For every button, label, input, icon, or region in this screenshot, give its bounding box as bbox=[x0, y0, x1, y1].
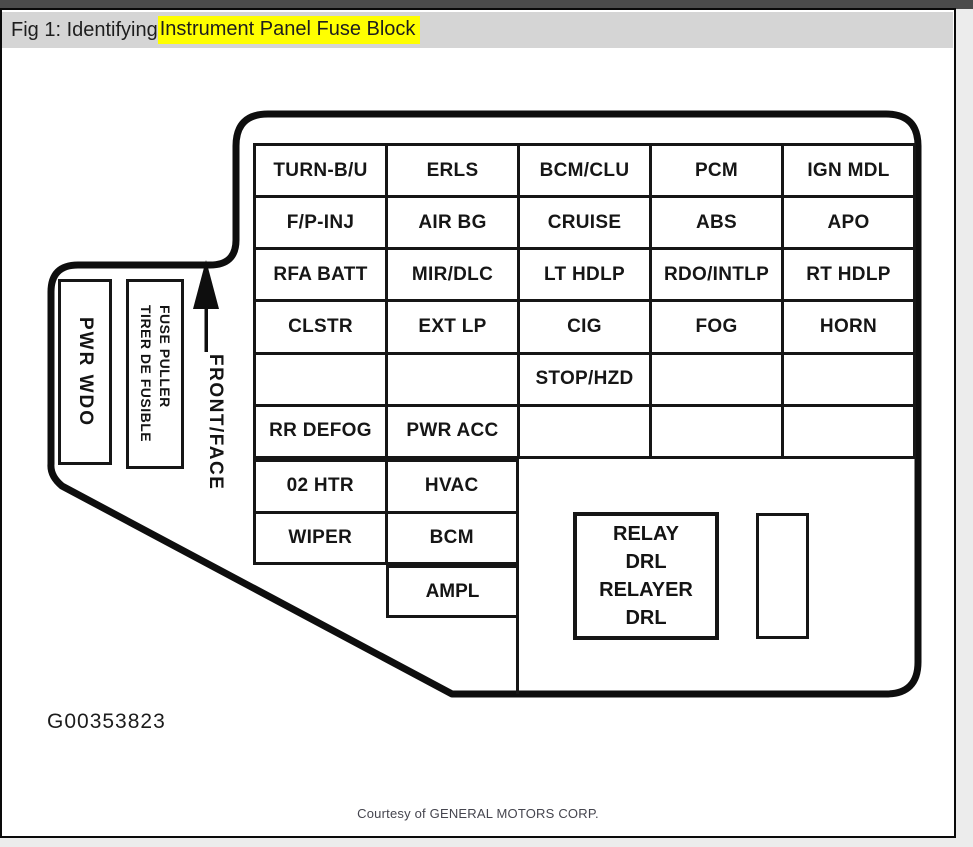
fuse-cell-empty bbox=[651, 353, 783, 405]
fuse-row: RR DEFOG PWR ACC bbox=[255, 405, 915, 457]
fuse-cell: ABS bbox=[651, 197, 783, 249]
fuse-cell: AMPL bbox=[386, 565, 519, 618]
figure-titlebar: Fig 1: Identifying Instrument Panel Fuse… bbox=[2, 12, 953, 48]
fuse-cell: WIPER bbox=[255, 512, 387, 564]
fuse-cell: RDO/INTLP bbox=[651, 249, 783, 301]
fuse-grid-lower: 02 HTR HVAC WIPER BCM bbox=[253, 459, 519, 565]
fuse-cell: IGN MDL bbox=[783, 145, 915, 197]
fuse-cell-empty bbox=[255, 353, 387, 405]
fuse-cell: RFA BATT bbox=[255, 249, 387, 301]
fuse-cell: CLSTR bbox=[255, 301, 387, 353]
fuse-cell: APO bbox=[783, 197, 915, 249]
relay-line: RELAYER bbox=[599, 576, 693, 604]
fuse-puller-box: FUSE PULLER TIRER DE FUSIBLE bbox=[126, 279, 184, 469]
fuse-cell: TURN-B/U bbox=[255, 145, 387, 197]
fuse-row: TURN-B/U ERLS BCM/CLU PCM IGN MDL bbox=[255, 145, 915, 197]
pwr-wdo-box: PWR WDO bbox=[58, 279, 112, 465]
fuse-puller-line-fr: TIRER DE FUSIBLE bbox=[136, 305, 155, 442]
relay-drl-box: RELAY DRL RELAYER DRL bbox=[573, 512, 719, 640]
figure-id: G00353823 bbox=[47, 710, 166, 734]
courtesy-credit: Courtesy of GENERAL MOTORS CORP. bbox=[2, 806, 954, 821]
fuse-cell: RR DEFOG bbox=[255, 405, 387, 457]
pwr-wdo-label: PWR WDO bbox=[74, 317, 96, 427]
fuse-cell-empty bbox=[651, 405, 783, 457]
fuse-cell: F/P-INJ bbox=[255, 197, 387, 249]
fuse-grid-main: TURN-B/U ERLS BCM/CLU PCM IGN MDL F/P-IN… bbox=[253, 143, 916, 459]
fuse-puller-label: FUSE PULLER TIRER DE FUSIBLE bbox=[136, 305, 174, 442]
fuse-block-diagram: TURN-B/U ERLS BCM/CLU PCM IGN MDL F/P-IN… bbox=[2, 48, 954, 836]
fuse-cell-empty bbox=[783, 353, 915, 405]
front-face-arrow-icon bbox=[193, 260, 219, 352]
fuse-cell-empty bbox=[783, 405, 915, 457]
fuse-cell: RT HDLP bbox=[783, 249, 915, 301]
fuse-puller-line-en: FUSE PULLER bbox=[155, 305, 174, 442]
fuse-row: STOP/HZD bbox=[255, 353, 915, 405]
empty-relay-slot-box bbox=[756, 513, 809, 639]
fuse-cell: ERLS bbox=[387, 145, 519, 197]
fuse-cell: CRUISE bbox=[519, 197, 651, 249]
fuse-cell: PCM bbox=[651, 145, 783, 197]
page: Fig 1: Identifying Instrument Panel Fuse… bbox=[0, 0, 973, 847]
fuse-cell: LT HDLP bbox=[519, 249, 651, 301]
fuse-cell-empty bbox=[519, 405, 651, 457]
fuse-cell-empty bbox=[387, 353, 519, 405]
fuse-row: WIPER BCM bbox=[255, 512, 518, 564]
fuse-cell: HORN bbox=[783, 301, 915, 353]
fuse-cell: FOG bbox=[651, 301, 783, 353]
fuse-cell: PWR ACC bbox=[387, 405, 519, 457]
figure-panel: Fig 1: Identifying Instrument Panel Fuse… bbox=[0, 8, 956, 838]
grid-divider-line bbox=[516, 616, 519, 694]
fuse-cell: BCM bbox=[386, 512, 518, 564]
figure-title-highlight: Instrument Panel Fuse Block bbox=[158, 16, 421, 44]
fuse-row: F/P-INJ AIR BG CRUISE ABS APO bbox=[255, 197, 915, 249]
fuse-cell: HVAC bbox=[386, 461, 518, 513]
fuse-row: CLSTR EXT LP CIG FOG HORN bbox=[255, 301, 915, 353]
fuse-cell: EXT LP bbox=[387, 301, 519, 353]
relay-line: DRL bbox=[625, 548, 666, 576]
fuse-cell: 02 HTR bbox=[255, 461, 387, 513]
fuse-cell: BCM/CLU bbox=[519, 145, 651, 197]
figure-title-prefix: Fig 1: Identifying bbox=[11, 19, 158, 42]
fuse-cell: AIR BG bbox=[387, 197, 519, 249]
fuse-row: 02 HTR HVAC bbox=[255, 461, 518, 513]
relay-line: DRL bbox=[625, 604, 666, 632]
relay-line: RELAY bbox=[613, 520, 679, 548]
fuse-cell: STOP/HZD bbox=[519, 353, 651, 405]
fuse-row: RFA BATT MIR/DLC LT HDLP RDO/INTLP RT HD… bbox=[255, 249, 915, 301]
fuse-cell: MIR/DLC bbox=[387, 249, 519, 301]
front-face-label: FRONT/FACE bbox=[186, 354, 226, 554]
fuse-cell: CIG bbox=[519, 301, 651, 353]
